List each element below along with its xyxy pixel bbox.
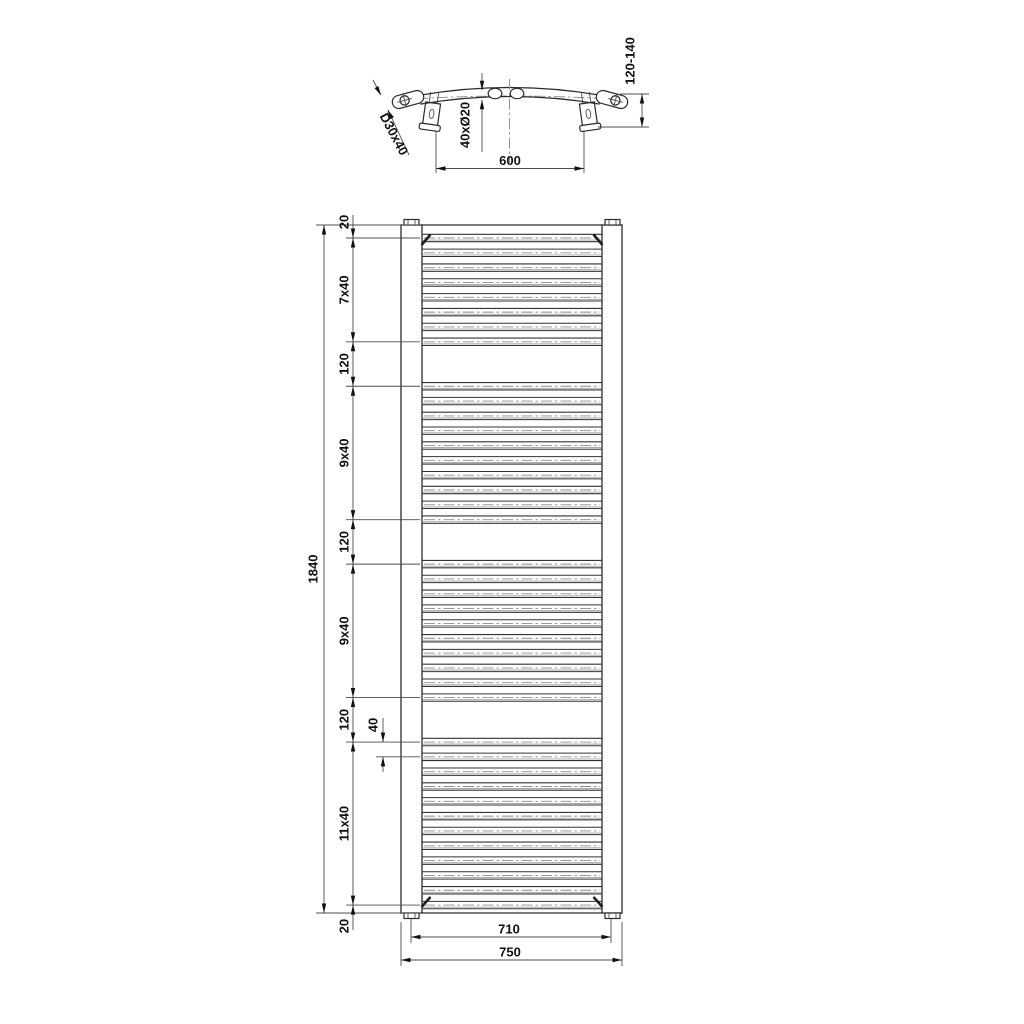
dim-label-pitch-40: 40 [366, 718, 381, 732]
dim-label-overall-height: 1840 [306, 555, 321, 584]
dim-label-120-2: 120 [337, 353, 352, 375]
radiator-drawing: 207x401209x401209x4012011x40204018407107… [0, 0, 1024, 1024]
dim-label-7x40-1: 7x40 [337, 275, 352, 304]
rail-profile-end [595, 88, 630, 111]
dim-label-wall-distance: 120-140 [623, 37, 638, 85]
dim-label-20-0: 20 [337, 215, 352, 229]
rail-profile-end [391, 88, 426, 111]
dim-label-tube-spec: 40xØ20 [458, 102, 473, 148]
dim-label-120-6: 120 [337, 709, 352, 731]
top-view [391, 79, 630, 163]
tube-rungs [422, 234, 602, 908]
dim-label-120-4: 120 [337, 531, 352, 553]
dim-label-9x40-5: 9x40 [337, 616, 352, 645]
dim-label-20-8: 20 [337, 919, 352, 933]
dim-label-rail-profile: D30x40 [377, 110, 412, 157]
dim-label-9x40-3: 9x40 [337, 438, 352, 467]
dim-label-bracket-spacing: 600 [499, 153, 521, 168]
front-view [401, 220, 622, 919]
dim-label-11x40-7: 11x40 [337, 806, 352, 841]
dim-label-overall-width: 750 [499, 945, 521, 960]
technical-drawing-page: 207x401209x401209x4012011x40204018407107… [0, 0, 1024, 1024]
dim-label-rail-spacing: 710 [498, 922, 520, 937]
